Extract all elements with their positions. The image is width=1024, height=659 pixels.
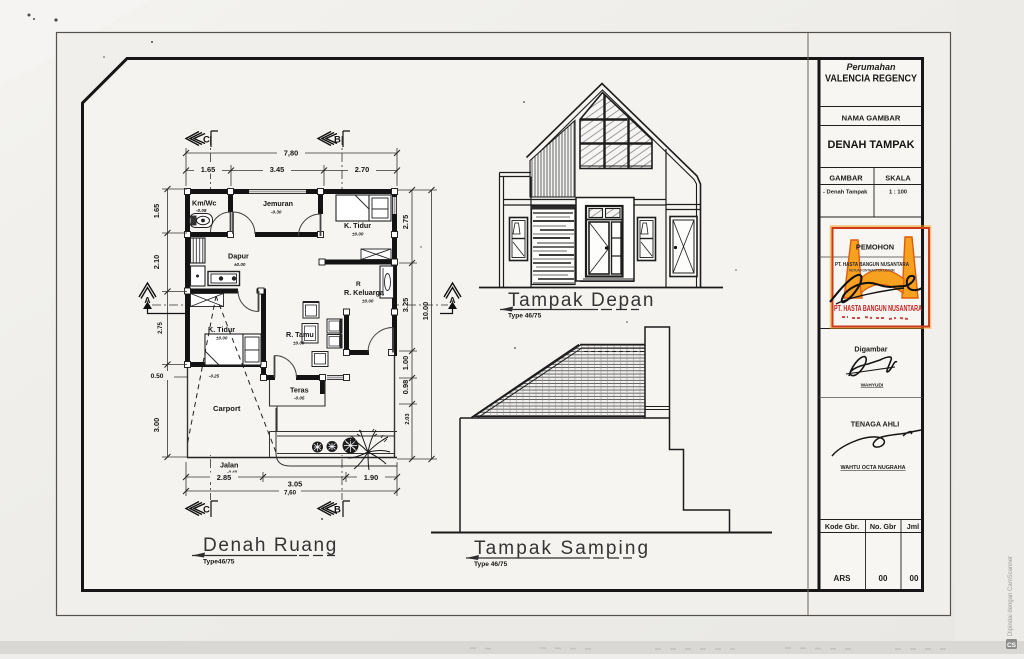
svg-text:Tampak Depan: Tampak Depan bbox=[508, 290, 655, 311]
svg-text:Denah Ruang: Denah Ruang bbox=[203, 535, 338, 556]
svg-text:NAMA GAMBAR: NAMA GAMBAR bbox=[842, 114, 901, 123]
svg-text:K. Tidur: K. Tidur bbox=[344, 221, 371, 230]
svg-text:1.65: 1.65 bbox=[152, 204, 161, 218]
svg-text:Dapur: Dapur bbox=[228, 252, 249, 261]
svg-text:C: C bbox=[203, 135, 210, 146]
svg-text:SKALA: SKALA bbox=[885, 174, 911, 183]
svg-text:±0.00: ±0.00 bbox=[362, 299, 374, 304]
svg-text:Carport: Carport bbox=[213, 404, 241, 413]
svg-text:GAMBAR: GAMBAR bbox=[829, 174, 863, 183]
svg-text:±0.00: ±0.00 bbox=[234, 262, 246, 267]
svg-text:10.00: 10.00 bbox=[421, 302, 430, 321]
svg-text:Jalan: Jalan bbox=[220, 461, 238, 470]
svg-text:- Denah Tampak: - Denah Tampak bbox=[823, 190, 868, 196]
svg-text:2.10: 2.10 bbox=[152, 255, 161, 269]
svg-text:-0.05: -0.05 bbox=[294, 396, 305, 401]
svg-text:2.75: 2.75 bbox=[401, 215, 410, 229]
svg-text:Jemuran: Jemuran bbox=[263, 199, 293, 208]
svg-text:PEMOHON: PEMOHON bbox=[856, 243, 894, 252]
svg-text:Type 46/75: Type 46/75 bbox=[508, 313, 542, 320]
svg-text:No. Gbr: No. Gbr bbox=[870, 522, 897, 531]
svg-text:C: C bbox=[203, 505, 210, 516]
svg-text:00: 00 bbox=[879, 574, 888, 583]
svg-text:7,60: 7,60 bbox=[284, 490, 297, 497]
svg-text:3.25: 3.25 bbox=[401, 298, 410, 312]
svg-text:-0.25: -0.25 bbox=[209, 374, 220, 379]
svg-text:2.03: 2.03 bbox=[405, 413, 411, 425]
svg-text:Teras: Teras bbox=[290, 386, 309, 395]
svg-text:TENAGA AHLI: TENAGA AHLI bbox=[851, 420, 900, 429]
svg-text:VALENCIA REGENCY: VALENCIA REGENCY bbox=[825, 74, 917, 85]
svg-text:7,80: 7,80 bbox=[284, 149, 298, 158]
svg-text:B: B bbox=[334, 135, 341, 146]
svg-text:Jml: Jml bbox=[907, 522, 919, 531]
svg-text:3.05: 3.05 bbox=[288, 480, 302, 489]
svg-text:Dipindai dengan CamScanner: Dipindai dengan CamScanner bbox=[1008, 556, 1014, 636]
svg-text:WAHTU OCTA NUGRAHA: WAHTU OCTA NUGRAHA bbox=[841, 465, 906, 471]
svg-text:PT. HASTA BANGUN NUSANTARA: PT. HASTA BANGUN NUSANTARA bbox=[834, 303, 922, 313]
svg-text:Digambar: Digambar bbox=[854, 345, 887, 354]
svg-text:Type46/75: Type46/75 bbox=[203, 559, 235, 566]
svg-text:1.65: 1.65 bbox=[201, 165, 215, 174]
svg-text:1 : 100: 1 : 100 bbox=[889, 190, 907, 196]
svg-text:2.75: 2.75 bbox=[158, 322, 164, 334]
svg-text:Tampak Samping: Tampak Samping bbox=[474, 538, 650, 559]
svg-text:±0.00: ±0.00 bbox=[352, 232, 364, 237]
svg-text:R. Tamu: R. Tamu bbox=[286, 330, 314, 339]
svg-text:R. Keluarga: R. Keluarga bbox=[344, 288, 385, 297]
svg-text:2.70: 2.70 bbox=[355, 165, 369, 174]
svg-text:±0.00: ±0.00 bbox=[293, 341, 305, 346]
svg-text:Perumahan: Perumahan bbox=[846, 62, 896, 72]
svg-text:3.45: 3.45 bbox=[270, 165, 284, 174]
svg-text:3.00: 3.00 bbox=[152, 418, 161, 432]
svg-text:WAHYUDI: WAHYUDI bbox=[861, 383, 884, 389]
svg-text:R: R bbox=[356, 281, 361, 288]
svg-text:2.85: 2.85 bbox=[217, 473, 231, 482]
svg-text:Type 46/75: Type 46/75 bbox=[474, 561, 508, 568]
svg-text:1.00: 1.00 bbox=[401, 356, 410, 370]
svg-text:-0.30: -0.30 bbox=[271, 210, 282, 215]
svg-text:0.98: 0.98 bbox=[401, 380, 410, 394]
svg-text:CS: CS bbox=[1007, 642, 1017, 649]
svg-text:KETUA KONTRAKTOR LISTRIK: KETUA KONTRAKTOR LISTRIK bbox=[849, 269, 896, 273]
svg-text:DENAH TAMPAK: DENAH TAMPAK bbox=[828, 139, 915, 151]
svg-text:ARS: ARS bbox=[834, 574, 852, 583]
svg-text:1.90: 1.90 bbox=[364, 473, 378, 482]
svg-text:K. Tidur: K. Tidur bbox=[208, 325, 235, 334]
svg-text:Km/Wc: Km/Wc bbox=[192, 199, 216, 208]
svg-text:B: B bbox=[334, 505, 341, 516]
svg-text:PT. HASTA BANGUN NUSANTARA: PT. HASTA BANGUN NUSANTARA bbox=[835, 262, 909, 268]
svg-text:-0.08: -0.08 bbox=[196, 208, 207, 213]
svg-text:0.50: 0.50 bbox=[151, 373, 164, 380]
svg-text:Kode Gbr.: Kode Gbr. bbox=[825, 522, 859, 531]
svg-text:±0.00: ±0.00 bbox=[216, 336, 228, 341]
svg-text:00: 00 bbox=[910, 574, 919, 583]
